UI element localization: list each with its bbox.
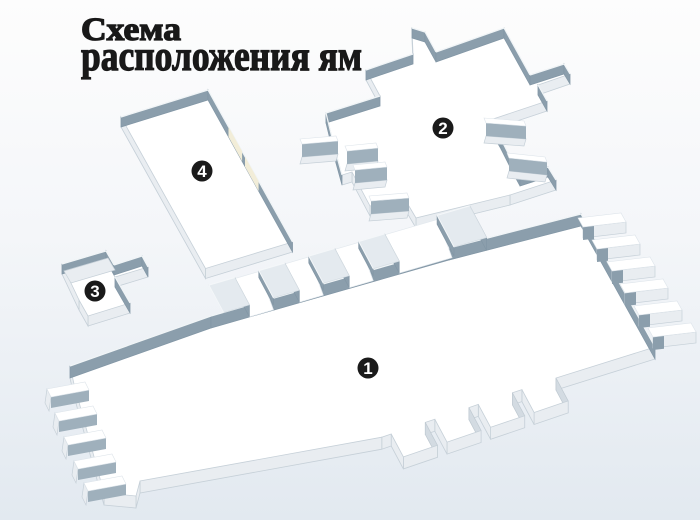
svg-text:расположения ям: расположения ям — [81, 34, 362, 80]
svg-text:1: 1 — [363, 359, 372, 378]
svg-text:3: 3 — [90, 282, 99, 301]
svg-text:4: 4 — [197, 162, 207, 181]
svg-text:2: 2 — [438, 119, 447, 138]
